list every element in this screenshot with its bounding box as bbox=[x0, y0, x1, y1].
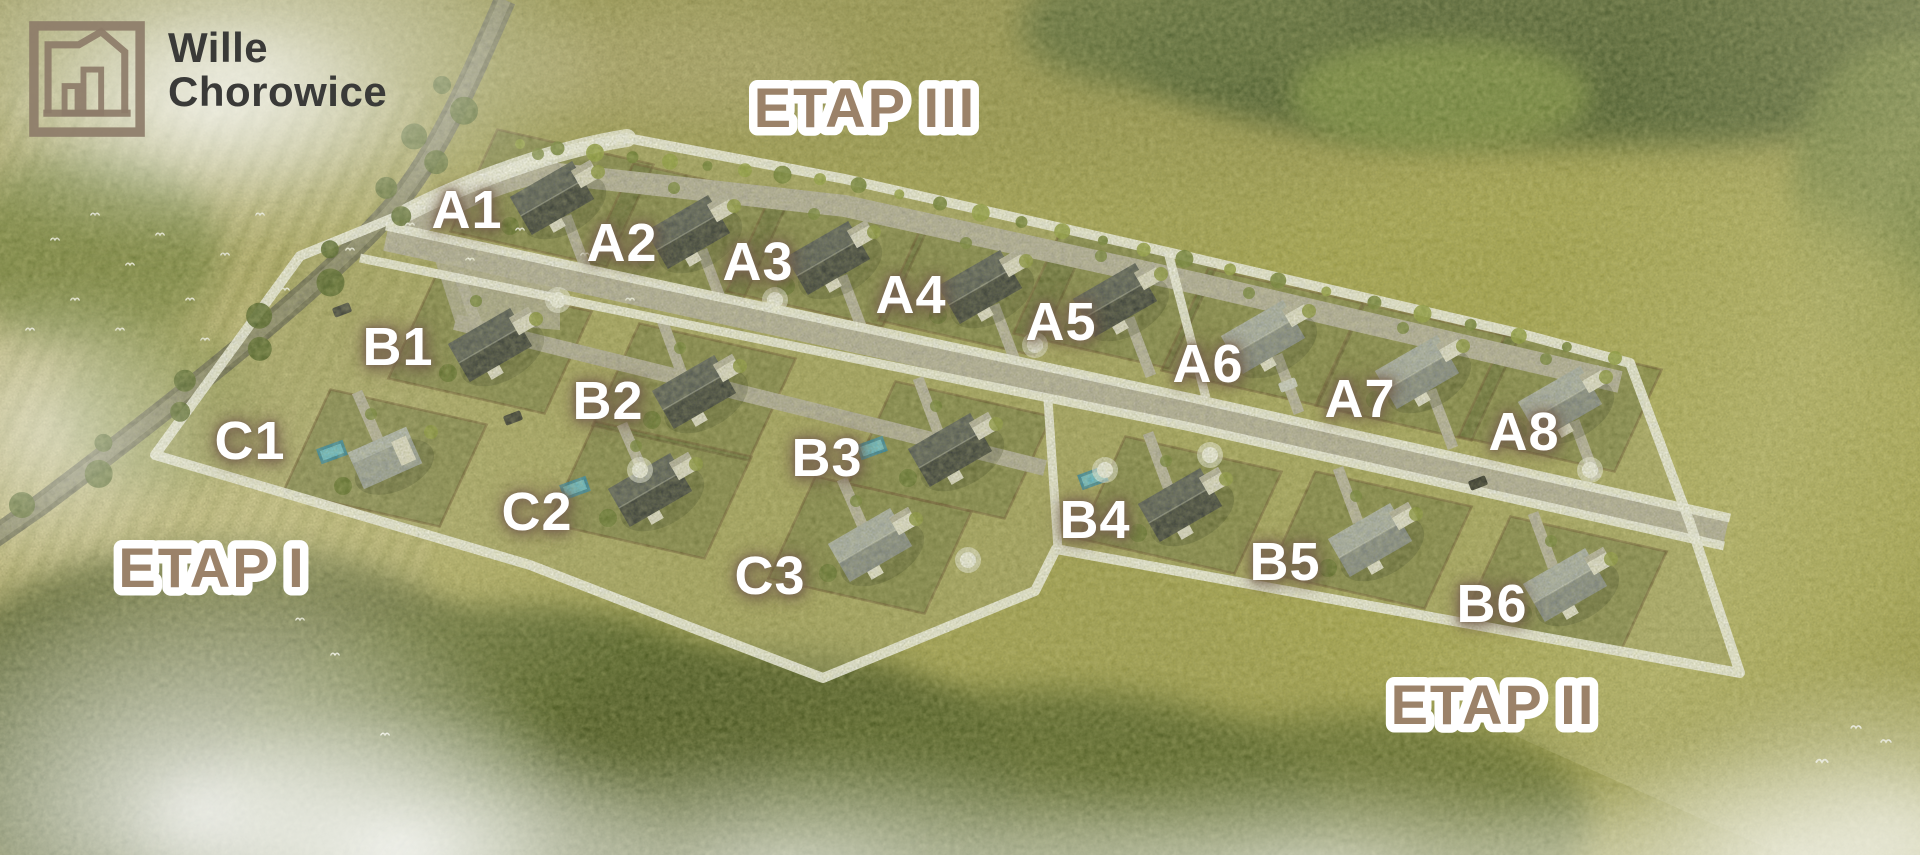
brand-line1: Wille bbox=[168, 26, 387, 70]
plot-label-B6[interactable]: B6 bbox=[1456, 577, 1527, 631]
stage-label-etap-ii: ETAP II bbox=[1353, 660, 1633, 750]
svg-text:ETAP I: ETAP I bbox=[118, 536, 305, 599]
plot-label-A5[interactable]: A5 bbox=[1025, 295, 1096, 349]
plot-label-C3[interactable]: C3 bbox=[734, 549, 805, 603]
brand-name: Wille Chorowice bbox=[168, 26, 387, 114]
plot-label-A2[interactable]: A2 bbox=[586, 216, 657, 270]
svg-text:ETAP III: ETAP III bbox=[754, 76, 976, 139]
plot-label-A6[interactable]: A6 bbox=[1172, 337, 1243, 391]
plot-label-C1[interactable]: C1 bbox=[214, 414, 285, 468]
plot-label-A1[interactable]: A1 bbox=[431, 183, 502, 237]
plot-label-A8[interactable]: A8 bbox=[1488, 405, 1559, 459]
stage-label-etap-i: ETAP I bbox=[72, 523, 352, 613]
plot-label-B4[interactable]: B4 bbox=[1059, 493, 1130, 547]
plot-label-B5[interactable]: B5 bbox=[1249, 535, 1320, 589]
plot-label-B2[interactable]: B2 bbox=[572, 374, 643, 428]
masterplan-scene: ETAP III ETAP I ETAP II A1A2A3A4A5A6A7A8… bbox=[0, 0, 1920, 855]
plot-label-B3[interactable]: B3 bbox=[791, 431, 862, 485]
plot-label-C2[interactable]: C2 bbox=[501, 485, 572, 539]
plot-label-A3[interactable]: A3 bbox=[722, 235, 793, 289]
brand-line2: Chorowice bbox=[168, 70, 387, 114]
plot-label-A7[interactable]: A7 bbox=[1324, 372, 1395, 426]
plot-label-B1[interactable]: B1 bbox=[362, 320, 433, 374]
stage-label-etap-iii: ETAP III bbox=[725, 63, 1005, 153]
svg-text:ETAP II: ETAP II bbox=[1391, 673, 1596, 736]
brand: Wille Chorowice bbox=[28, 20, 387, 138]
plot-label-A4[interactable]: A4 bbox=[875, 268, 946, 322]
brand-logo-icon bbox=[28, 20, 146, 138]
